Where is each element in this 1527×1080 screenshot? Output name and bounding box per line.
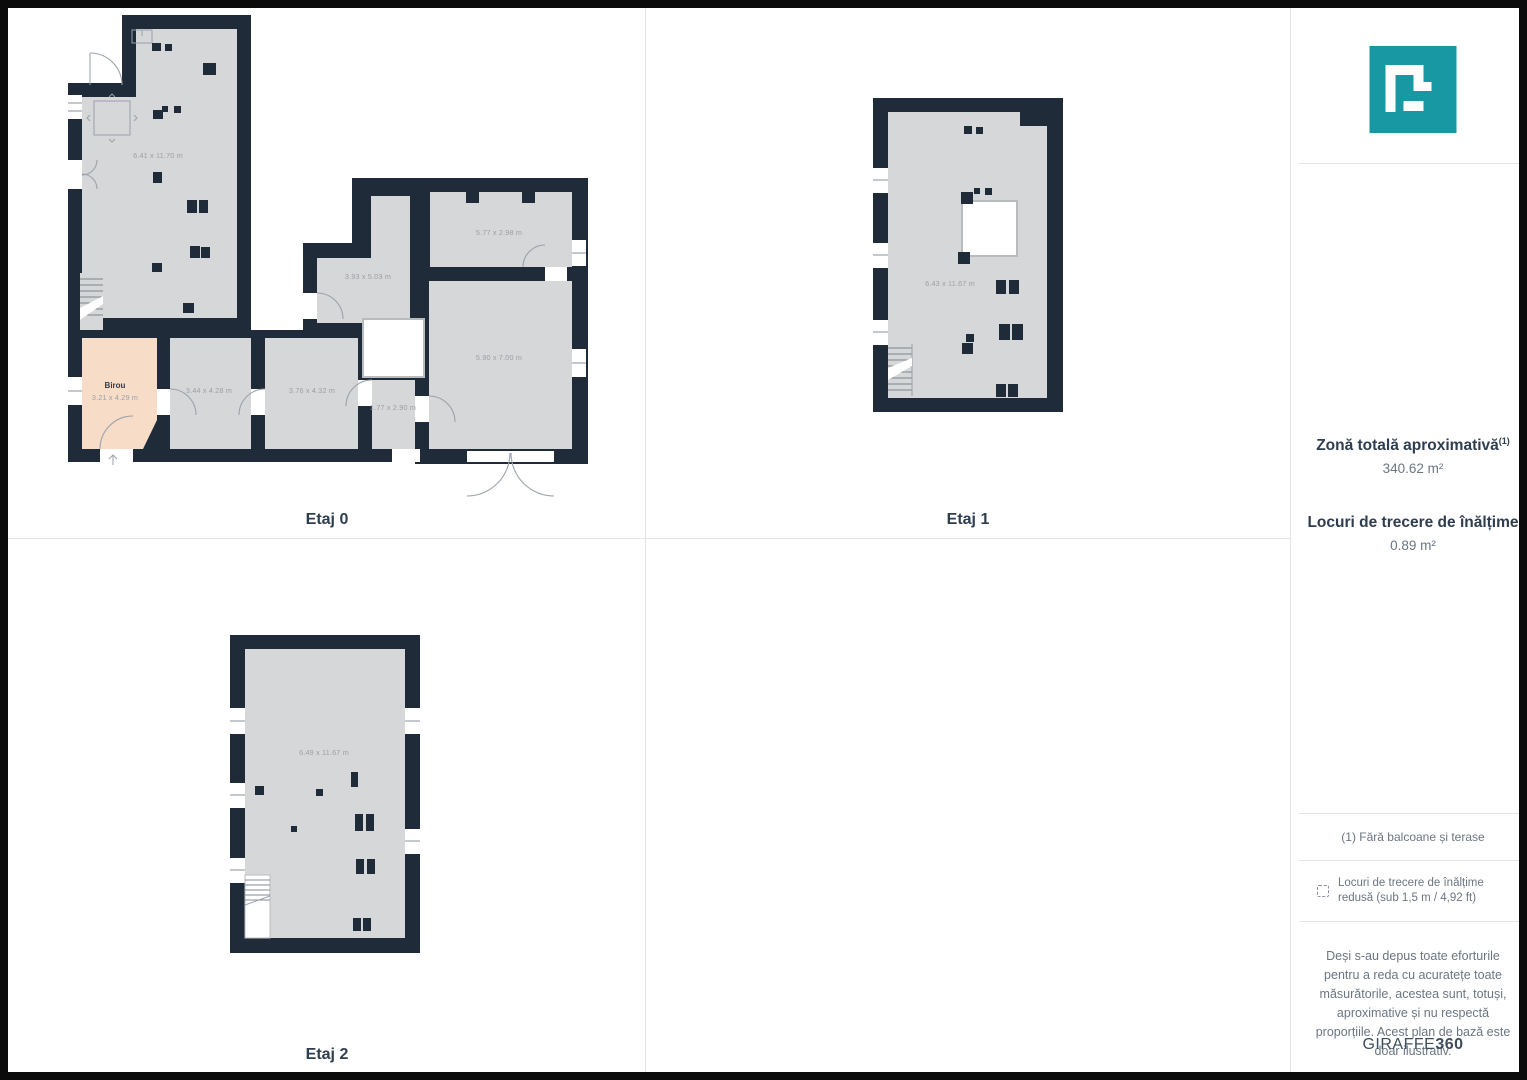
dashed-area-icon — [1317, 885, 1329, 897]
divider-horizontal-plans — [8, 538, 1290, 539]
legend-text: Locuri de trecere de înălțime redusă (su… — [1338, 876, 1509, 906]
room-dimension: 6.41 x 11.70 m — [133, 151, 183, 160]
room-dimension: 6.49 x 11.67 m — [299, 748, 349, 757]
divider-sidebar — [1290, 8, 1291, 1072]
floorplan-etaj-0: 6.41 x 11.70 m Birou 3.21 x 4.29 m 3.44 … — [60, 8, 600, 506]
floor-label-etaj-1: Etaj 1 — [947, 511, 990, 529]
floorplan-page: 6.41 x 11.70 m Birou 3.21 x 4.29 m 3.44 … — [0, 0, 1527, 1080]
etaj0-stairs — [80, 273, 103, 330]
room-dimension: 3.93 x 5.03 m — [345, 272, 391, 281]
floorplan-etaj-1: 6.43 x 11.67 m — [865, 90, 1071, 420]
brand-wordmark: GIRAFFE360 — [1299, 1036, 1527, 1054]
room-dimension: 3.44 x 4.28 m — [186, 386, 232, 395]
room-dimension: 6.43 x 11.67 m — [925, 279, 975, 288]
divider-vertical-plans — [645, 8, 646, 1072]
etaj2-stairs — [245, 875, 270, 938]
total-area-footnote-ref: (1) — [1499, 436, 1510, 446]
floorplan-etaj-2: 6.49 x 11.67 m — [222, 627, 428, 961]
sidebar-divider-top — [1299, 163, 1527, 164]
total-area-value: 340.62 m² — [1299, 459, 1527, 479]
room-name-birou: Birou — [105, 381, 126, 390]
floor-label-etaj-0: Etaj 0 — [306, 511, 349, 529]
sidebar-divider-legend-bottom — [1299, 921, 1527, 922]
total-area-title: Zonă totală aproximativă(1) — [1299, 431, 1527, 456]
room-dimension: 3.21 x 4.29 m — [92, 393, 138, 402]
room-dimension: 1.77 x 2.90 m — [370, 403, 416, 412]
area-summary: Zonă totală aproximativă(1) 340.62 m² Lo… — [1299, 431, 1527, 556]
legend-reduced-height: Locuri de trecere de înălțime redusă (su… — [1299, 861, 1527, 921]
floor-label-etaj-2: Etaj 2 — [306, 1046, 349, 1064]
footnote: (1) Fără balcoane și terase — [1299, 814, 1527, 860]
room-dimension: 3.76 x 4.32 m — [289, 386, 335, 395]
room-dimension: 5.77 x 2.98 m — [476, 228, 522, 237]
brand-suffix: 360 — [1435, 1036, 1463, 1053]
total-area-title-text: Zonă totală aproximativă — [1316, 437, 1499, 454]
giraffe360-logo — [1370, 46, 1457, 133]
passage-area-title: Locuri de trecere de înălțime — [1299, 512, 1527, 533]
room-dimension: 5.90 x 7.00 m — [476, 353, 522, 362]
info-sidebar: Zonă totală aproximativă(1) 340.62 m² Lo… — [1299, 8, 1527, 1072]
passage-area-value: 0.89 m² — [1299, 536, 1527, 556]
reduced-height-area — [363, 319, 424, 377]
brand-name: GIRAFFE — [1362, 1036, 1435, 1053]
floor-opening — [962, 201, 1017, 256]
